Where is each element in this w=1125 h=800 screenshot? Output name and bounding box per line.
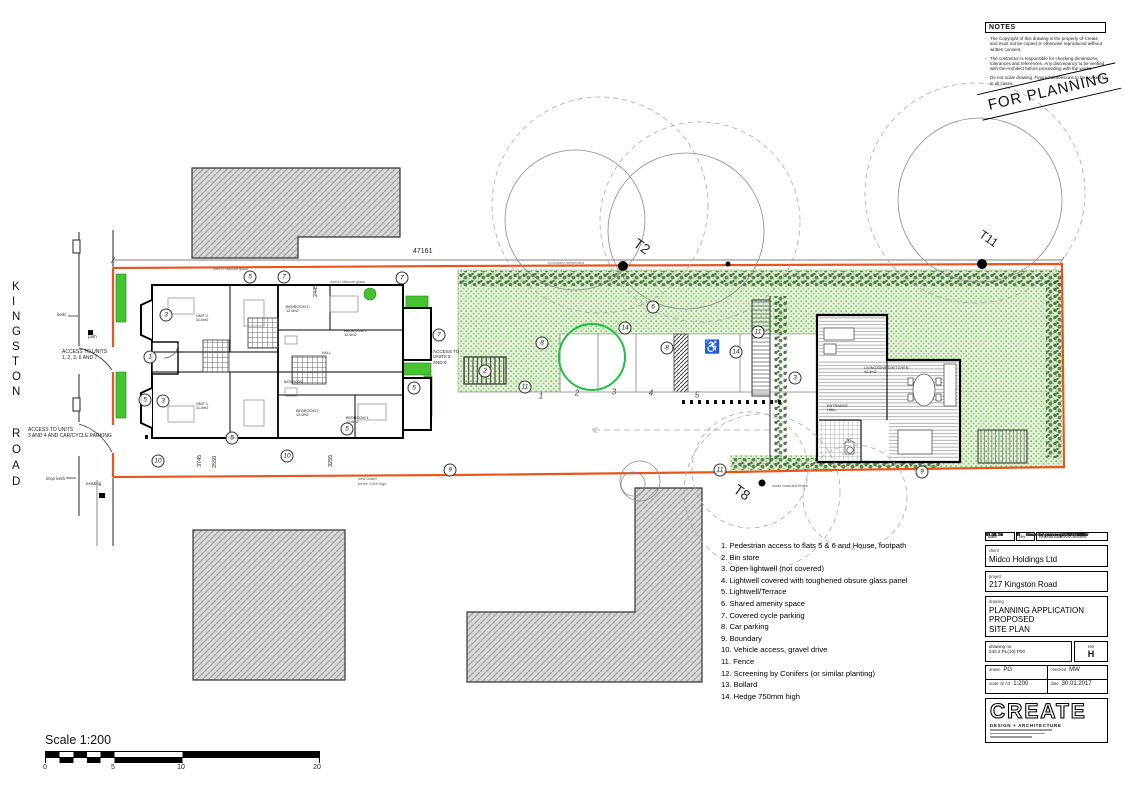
circled-ref-number: 2 <box>479 365 492 378</box>
circled-ref-number: 7 <box>278 271 291 284</box>
revision-desc: Issue for comments / PG / MW <box>1026 531 1089 538</box>
legend-item: 8. Car parking <box>721 621 981 633</box>
logo-address-line <box>990 729 1052 731</box>
legend-item: 11. Fence <box>721 656 981 668</box>
plan-label: BEDROOM 2 12.0m2 <box>286 305 309 314</box>
legend-item: 4. Lightwell covered with toughened obsu… <box>721 575 981 587</box>
legend-item: 1. Pedestrian access to flats 5 & 6 and … <box>721 540 981 552</box>
road-name-kingston: K I N G S T O N <box>12 280 22 400</box>
site-plan-sheet: K I N G S T O N R O A D 1357735575510109… <box>0 0 1125 800</box>
circled-ref-number: 14 <box>730 346 743 359</box>
legend-item: 2. Bin store <box>721 552 981 564</box>
scale-value: 1:200 <box>1013 681 1028 687</box>
project-label: project <box>989 574 1104 579</box>
plan-label: ♿ <box>704 340 720 355</box>
client-box: client Midco Holdings Ltd <box>985 545 1108 567</box>
plan-label: wall in obscure glass <box>330 280 365 284</box>
title-block: 13.05.21 H Issue for planning / AP / MW … <box>985 531 1108 743</box>
legend-item: 6. Shared amenity space <box>721 598 981 610</box>
plan-label: BEDROOM 1 12.6m2 <box>344 329 367 338</box>
scale-bar <box>45 751 320 763</box>
revision-date: 26.10.16 <box>985 531 1011 538</box>
circled-ref-number: 7 <box>396 272 409 285</box>
drawn-label: drawn <box>989 667 1000 672</box>
logo-name: CREATE <box>990 702 1103 722</box>
plan-label: LIVING/DINING/KITCHEN 42.4m2 <box>864 366 909 375</box>
scale-label: scale @ A3 <box>989 681 1010 686</box>
circled-ref-number: 3 <box>157 395 170 408</box>
drawing-title-line: SITE PLAN <box>989 625 1104 634</box>
circled-ref-number: 14 <box>619 322 632 335</box>
shrub-icon <box>364 288 376 300</box>
plan-label: WC <box>846 438 852 442</box>
drawing-number-row: drawing no 240 2 PL(10) P00 rev H <box>985 641 1108 662</box>
legend-item: 12. Screening by Conifers (or similar pl… <box>721 668 981 680</box>
plan-label: new board fence 1.8m high <box>358 477 386 486</box>
drawing-title-line: PLANNING APPLICATION <box>989 606 1104 615</box>
checked-value: MW <box>1069 667 1080 673</box>
plan-label: ENTRANCE HALL <box>827 404 848 413</box>
notes-title: NOTES <box>985 22 1106 33</box>
revision-row: 26.10.16 A Issue for comments / PG / MW <box>985 531 1089 538</box>
parking-bay-number: 3 <box>612 388 616 397</box>
legend-item: 5. Lightwell/Terrace <box>721 586 981 598</box>
checked-label: checked <box>1051 667 1067 672</box>
scale-tick: 20 <box>313 764 321 771</box>
client-name: Midco Holdings Ltd <box>989 555 1104 564</box>
drawing-no: 240 2 PL(10) P00 <box>989 649 1068 654</box>
plan-label: 3745 <box>197 455 203 467</box>
circled-ref-number: 9 <box>916 466 929 479</box>
project-box: project 217 Kingston Road <box>985 571 1108 593</box>
plan-label: BEDROOM 2 12.0m2 <box>296 409 319 418</box>
rev-value: H <box>1078 649 1104 659</box>
parking-bay-number: 4 <box>649 389 653 398</box>
drawn-value: PG <box>1003 667 1012 673</box>
logo-address-line <box>990 733 1045 735</box>
circled-ref-number: 11 <box>519 381 532 394</box>
plan-label: BATHROOM <box>284 381 303 385</box>
plan-label: BEDROOM 1 12.6m2 <box>346 416 369 425</box>
plan-label: existing <box>86 481 101 486</box>
plan-label: boundary delineated <box>548 261 584 266</box>
architect-logo: CREATE DESIGN + ARCHITECTURE <box>985 698 1108 743</box>
plan-label: path <box>88 334 97 339</box>
plan-label: wall in obscure glass <box>213 267 248 271</box>
circled-ref-number: 5 <box>244 271 257 284</box>
circled-ref-number: 7 <box>433 329 446 342</box>
plan-label: kerb <box>57 312 66 317</box>
circled-ref-number: 5 <box>408 382 421 395</box>
plan-label: 2550 <box>212 456 218 468</box>
project-name: 217 Kingston Road <box>989 580 1104 589</box>
legend-list: 1. Pedestrian access to flats 5 & 6 and … <box>721 540 981 702</box>
circled-ref-number: 6 <box>647 301 660 314</box>
circled-ref-number: 11 <box>752 326 765 339</box>
note-item: The Copyright of this drawing is the pro… <box>985 36 1106 52</box>
legend-item: 14. Hedge 750mm high <box>721 691 981 703</box>
plan-label: UNIT 2 11.0m2 <box>196 314 208 323</box>
drawing-box: drawing PLANNING APPLICATION PROPOSED SI… <box>985 596 1108 637</box>
legend-item: 9. Boundary <box>721 633 981 645</box>
scale-tick: 0 <box>43 764 47 771</box>
kingston-road-kerbs <box>66 230 113 546</box>
circled-ref-number: 1 <box>144 351 157 364</box>
plan-label: 3255 <box>328 455 334 467</box>
legend-item: 10. Vehicle access, gravel drive <box>721 644 981 656</box>
circled-ref-number: 9 <box>444 464 457 477</box>
circled-ref-number: 5 <box>139 394 152 407</box>
client-label: client <box>989 548 1104 553</box>
parking-bay-number: 5 <box>695 391 699 400</box>
circled-ref-number: 11 <box>714 464 727 477</box>
circled-ref-number: 10 <box>152 455 165 468</box>
scale-tick: 10 <box>177 764 185 771</box>
plan-label: close boarded fence <box>772 484 808 489</box>
drawing-title-line: PROPOSED <box>989 615 1104 624</box>
plan-label: 47161 <box>413 248 432 256</box>
drawn-checked-box: drawn PG checked MW scale @ A3 1:200 dat… <box>985 665 1108 694</box>
legend-item: 13. Bollard <box>721 679 981 691</box>
circled-ref-number: 5 <box>226 432 239 445</box>
legend-item: 7. Covered cycle parking <box>721 610 981 622</box>
plan-label: HALL <box>322 351 331 355</box>
plan-label: drop kerb <box>46 476 65 481</box>
circled-ref-number: 8 <box>661 342 674 355</box>
logo-address-line <box>990 736 1032 738</box>
plan-label: UNIT 1 11.0m2 <box>196 402 208 411</box>
circled-ref-number: 10 <box>281 450 294 463</box>
scale-bar-title: Scale 1:200 <box>45 733 111 747</box>
circled-ref-number: 3 <box>789 372 802 385</box>
date-label: date <box>1051 681 1059 686</box>
plan-label: ACCESS TO UNITS 3 AND 4 AND CAR/CYCLE PA… <box>28 428 112 440</box>
revision-letter: A <box>1011 531 1026 538</box>
plan-label: 2445 <box>313 285 319 297</box>
legend-item: 3. Open lightwell (not covered) <box>721 563 981 575</box>
circled-ref-number: 3 <box>160 309 173 322</box>
plan-label: ACCESS TO UNITS 5 AND 6 <box>433 349 459 365</box>
parking-bay-number: 2 <box>575 389 579 398</box>
circled-ref-number: 8 <box>536 337 549 350</box>
date-value: 30.01.2017 <box>1062 681 1092 687</box>
drawing-label: drawing <box>989 599 1104 604</box>
plan-label: ACCESS TO UNITS 1, 2, 3, 6 AND 7 <box>62 350 107 362</box>
parking-bay-number: 1 <box>539 392 543 401</box>
logo-subtitle: DESIGN + ARCHITECTURE <box>990 723 1103 728</box>
scale-tick: 5 <box>111 764 115 771</box>
road-name-road: R O A D <box>12 426 22 490</box>
